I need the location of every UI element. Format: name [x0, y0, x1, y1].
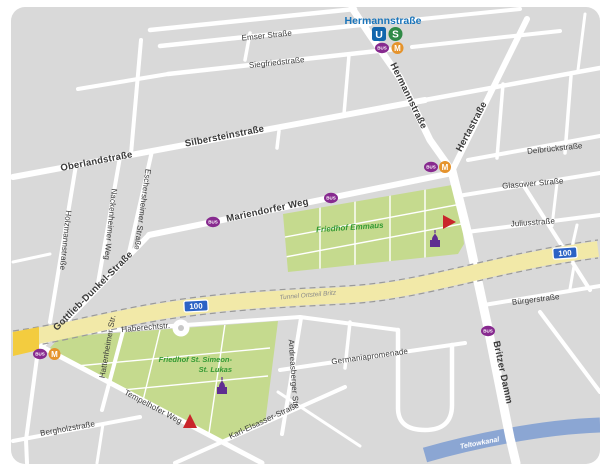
station-title: Hermannstraße: [344, 15, 421, 27]
map-page: 100 100 Emser Straße Siegfriedstraße Sil…: [0, 0, 605, 472]
svg-text:100: 100: [189, 301, 203, 311]
svg-text:BUS: BUS: [483, 329, 493, 334]
road-minor: [277, 131, 279, 148]
svg-text:BUS: BUS: [426, 165, 436, 170]
svg-text:M: M: [442, 163, 449, 172]
svg-text:BUS: BUS: [35, 352, 45, 357]
metrobus-icon[interactable]: M: [49, 348, 61, 360]
bus-stop-icon[interactable]: BUS: [33, 349, 47, 359]
svg-text:BUS: BUS: [326, 196, 336, 201]
metrobus-icon[interactable]: M: [392, 42, 404, 54]
route-100-shield: 100: [184, 300, 209, 312]
bus-stop-icon[interactable]: BUS: [375, 43, 389, 53]
metrobus-icon[interactable]: M: [439, 161, 451, 173]
label-friedhof-simeon-line2: St. Lukas: [199, 365, 232, 374]
bus-stop-icon[interactable]: BUS: [481, 326, 495, 336]
u-bahn-icon[interactable]: U: [372, 27, 386, 41]
s-bahn-icon[interactable]: S: [389, 27, 403, 41]
label-friedhof-simeon-line1: Friedhof St. Simeon-: [159, 355, 233, 364]
svg-text:M: M: [394, 44, 401, 53]
svg-text:BUS: BUS: [377, 46, 387, 51]
bus-stop-icon[interactable]: BUS: [424, 162, 438, 172]
bus-stop-icon[interactable]: BUS: [324, 193, 338, 203]
route-100-shield: 100: [553, 247, 578, 260]
svg-text:M: M: [51, 350, 58, 359]
city-map[interactable]: 100 100 Emser Straße Siegfriedstraße Sil…: [0, 0, 605, 472]
roundabout: [173, 320, 190, 337]
svg-text:U: U: [375, 29, 383, 41]
bus-stop-icon[interactable]: BUS: [206, 217, 220, 227]
svg-text:BUS: BUS: [208, 220, 218, 225]
svg-text:100: 100: [558, 248, 572, 258]
svg-text:S: S: [392, 30, 399, 41]
